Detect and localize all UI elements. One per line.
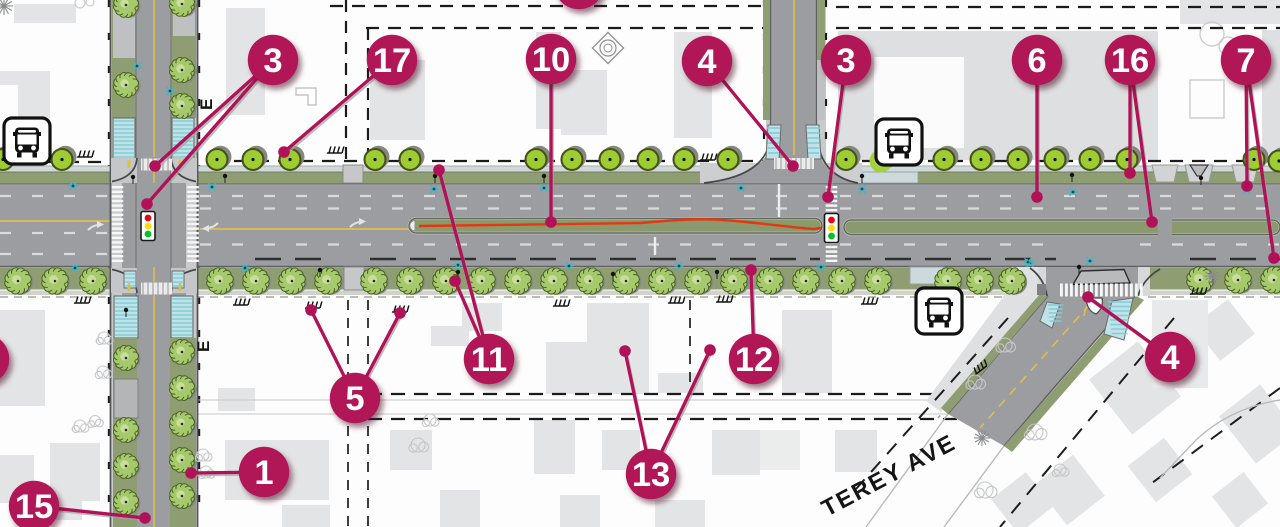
svg-text:16: 16 bbox=[1111, 42, 1149, 80]
svg-text:5: 5 bbox=[345, 380, 364, 418]
svg-text:6: 6 bbox=[1027, 42, 1046, 80]
svg-text:13: 13 bbox=[632, 456, 670, 494]
svg-text:1: 1 bbox=[254, 454, 273, 492]
svg-text:E: E bbox=[197, 99, 216, 110]
svg-text:11: 11 bbox=[471, 341, 507, 379]
svg-text:3: 3 bbox=[836, 42, 855, 80]
svg-text:17: 17 bbox=[373, 42, 411, 80]
svg-text:3: 3 bbox=[263, 42, 282, 80]
svg-text:7: 7 bbox=[1236, 42, 1255, 80]
svg-text:E: E bbox=[194, 341, 213, 352]
svg-text:15: 15 bbox=[15, 488, 53, 526]
svg-text:12: 12 bbox=[735, 341, 773, 379]
svg-text:10: 10 bbox=[532, 41, 570, 79]
svg-text:4: 4 bbox=[1160, 339, 1179, 377]
svg-text:4: 4 bbox=[697, 43, 716, 81]
